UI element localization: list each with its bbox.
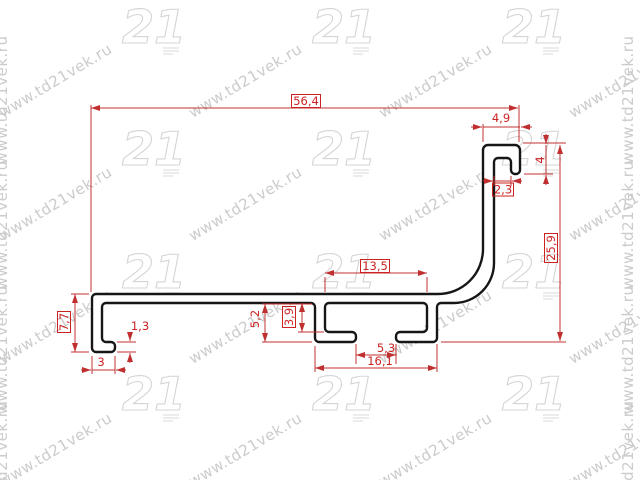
watermark-site-text: www.td21vek.ru xyxy=(186,409,306,480)
watermark-21-logo: 21 xyxy=(122,122,186,176)
watermark-site-text-edge: www.td21vek.ru xyxy=(0,286,11,415)
dim-label-channel-depth-total: 5,2 xyxy=(248,310,262,328)
dim-label-left-lip: 1,3 xyxy=(131,319,149,333)
watermark-21-logo: 21 xyxy=(502,0,566,54)
watermark-site-text: www.td21vek.ru xyxy=(376,409,496,480)
watermark-21-logo: 21 xyxy=(122,0,186,54)
watermark-site-text: www.td21vek.ru xyxy=(186,163,306,245)
dim-label-left-height: 7,7 xyxy=(57,313,71,331)
watermark-site-text-edge: www.td21vek.ru xyxy=(0,36,11,165)
watermark-logo-text: 21 xyxy=(502,367,566,421)
watermark-logo-text: 21 xyxy=(502,0,566,54)
watermark-site-text-edge: www.td21vek.ru xyxy=(619,161,637,290)
watermark-21-logo: 21 xyxy=(312,122,376,176)
watermark-logo-text: 21 xyxy=(122,245,186,299)
watermark-logo-text: 21 xyxy=(312,0,376,54)
dim-left-foot: 3 xyxy=(81,355,126,374)
technical-drawing-page: www.td21vek.ruwww.td21vek.ruwww.td21vek.… xyxy=(0,0,640,480)
dim-label-channel-inner-width: 13,5 xyxy=(362,259,388,273)
watermark-site-text-edge: www.td21vek.ru xyxy=(619,401,637,480)
watermark-site-text: www.td21vek.ru xyxy=(376,163,496,245)
watermark-site-text: www.td21vek.ru xyxy=(186,40,306,122)
watermark-logo-text: 21 xyxy=(122,122,186,176)
dim-left-lip: 1,3 xyxy=(117,319,149,363)
watermark-21-logo: 21 xyxy=(122,245,186,299)
dim-label-overall-width: 56,4 xyxy=(293,94,319,108)
watermark-site-text-edge: www.td21vek.ru xyxy=(0,401,11,480)
watermark-21-logo: 21 xyxy=(122,367,186,421)
dim-label-hook-height: 4 xyxy=(533,156,547,163)
watermark-site-text: www.td21vek.ru xyxy=(0,163,115,245)
dim-label-overall-height: 25,9 xyxy=(544,235,558,261)
watermark-logo-text: 21 xyxy=(122,367,186,421)
dim-label-left-foot: 3 xyxy=(97,355,104,369)
drawing-canvas: www.td21vek.ruwww.td21vek.ruwww.td21vek.… xyxy=(0,0,640,480)
watermark-logo-text: 21 xyxy=(312,122,376,176)
watermark-logo-text: 21 xyxy=(122,0,186,54)
watermark-site-text-edge: www.td21vek.ru xyxy=(619,286,637,415)
watermark-site-text: www.td21vek.ru xyxy=(0,40,115,122)
watermark-21-logo: 21 xyxy=(312,367,376,421)
watermark-21-logo: 21 xyxy=(312,0,376,54)
dim-label-hook-slot: 2,3 xyxy=(494,183,512,197)
dim-label-hook-width: 4,9 xyxy=(492,111,510,125)
watermark-site-text: www.td21vek.ru xyxy=(376,40,496,122)
dim-label-channel-outer-width: 16,1 xyxy=(367,354,393,368)
watermark-logo-text: 21 xyxy=(312,367,376,421)
dim-label-bottom-slot: 5,3 xyxy=(377,341,395,355)
dim-label-channel-depth-lip: 3,9 xyxy=(282,308,296,326)
watermark-21-logo: 21 xyxy=(502,367,566,421)
watermark-site-text-edge: www.td21vek.ru xyxy=(0,161,11,290)
watermark-site-text: www.td21vek.ru xyxy=(0,409,115,480)
watermark-site-text-edge: www.td21vek.ru xyxy=(619,36,637,165)
